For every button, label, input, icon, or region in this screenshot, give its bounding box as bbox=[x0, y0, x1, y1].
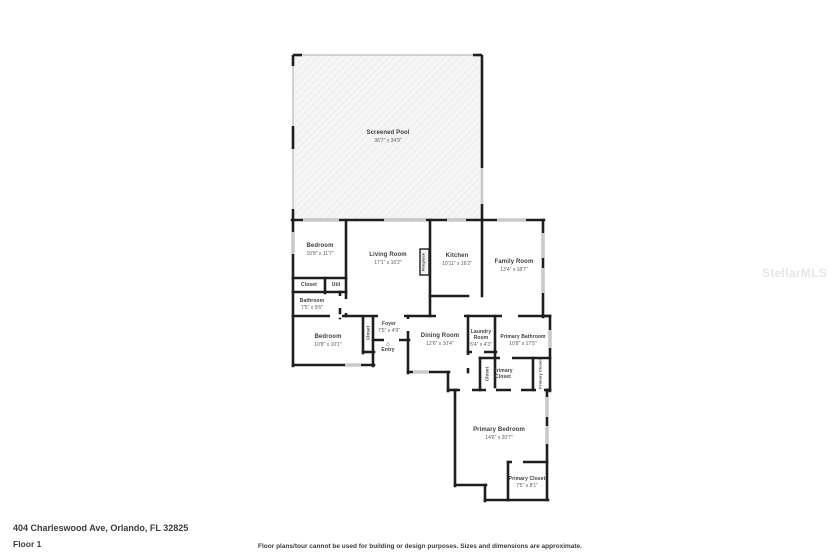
room-label-entry: Entry bbox=[381, 347, 394, 353]
stellar-mls-watermark: StellarMLS bbox=[762, 266, 827, 280]
room-label-living-room: Living Room 17'1" x 16'2" bbox=[369, 252, 406, 266]
floorplan-canvas: Screened Pool 36'7" x 34'9" Bedroom 10'8… bbox=[0, 0, 840, 560]
room-label-bedroom-1: Bedroom 10'8" x 11'7" bbox=[306, 243, 333, 257]
room-label-closet-bedroom-2: Closet bbox=[365, 326, 370, 340]
room-label-laundry-room: Laundry Room 5'4" x 4'3" bbox=[467, 329, 495, 348]
room-label-bathroom: Bathroom 7'5" x 9'6" bbox=[300, 298, 324, 311]
room-label-primary-closet-b: Primary Closet bbox=[539, 359, 544, 389]
room-label-kitchen: Kitchen 10'11" x 16'2" bbox=[442, 253, 472, 267]
room-label-primary-closet-c: Primary Closet 7'5" x 8'1" bbox=[507, 476, 547, 489]
floorplan-walls bbox=[0, 0, 840, 560]
room-label-primary-closet-a: Primary Closet bbox=[489, 368, 517, 380]
room-label-foyer: Foyer 7'5" x 4'9" bbox=[378, 321, 400, 334]
disclaimer-text: Floor plans/tour cannot be used for buil… bbox=[0, 543, 840, 550]
room-label-util: Util bbox=[332, 282, 340, 288]
room-label-screened-pool: Screened Pool 36'7" x 34'9" bbox=[367, 130, 410, 144]
room-label-family-room: Family Room 13'4" x 18'7" bbox=[495, 259, 534, 273]
room-label-bedroom-2: Bedroom 10'8" x 10'1" bbox=[314, 334, 341, 348]
address-text: 404 Charleswood Ave, Orlando, FL 32825 bbox=[13, 523, 188, 533]
room-label-fireplace: Fireplace bbox=[422, 253, 427, 271]
room-label-dining-room: Dining Room 12'6" x 10'4" bbox=[421, 333, 459, 347]
room-label-closet-hall: Closet bbox=[301, 282, 317, 288]
room-label-primary-bathroom: Primary Bathroom 10'8" x 17'5" bbox=[500, 334, 545, 347]
room-label-primary-bedroom: Primary Bedroom 14'6" x 20'7" bbox=[473, 427, 525, 441]
